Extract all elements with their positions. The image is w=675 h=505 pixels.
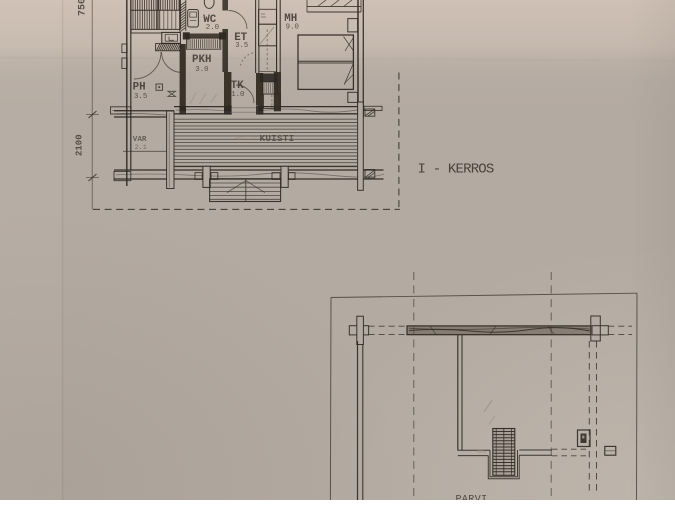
svg-text:VAR: VAR bbox=[133, 136, 147, 144]
svg-text:2100: 2100 bbox=[75, 134, 85, 156]
svg-text:PH: PH bbox=[133, 82, 146, 94]
svg-text:1.0: 1.0 bbox=[231, 91, 244, 99]
svg-text:750: 750 bbox=[78, 0, 89, 16]
svg-text:2.1: 2.1 bbox=[135, 144, 147, 152]
svg-text:3.0: 3.0 bbox=[195, 66, 208, 74]
svg-text:3.5: 3.5 bbox=[134, 93, 147, 101]
svg-text:9.0: 9.0 bbox=[286, 23, 299, 31]
svg-text:3.5: 3.5 bbox=[235, 42, 248, 50]
svg-text:PARVI: PARVI bbox=[456, 495, 488, 500]
svg-text:I - KERROS: I - KERROS bbox=[418, 161, 494, 177]
svg-text:9x19: 9x19 bbox=[477, 451, 486, 455]
svg-text:PKH: PKH bbox=[192, 54, 211, 66]
svg-text:2.0: 2.0 bbox=[206, 24, 219, 32]
svg-text:KUISTI: KUISTI bbox=[260, 133, 295, 144]
